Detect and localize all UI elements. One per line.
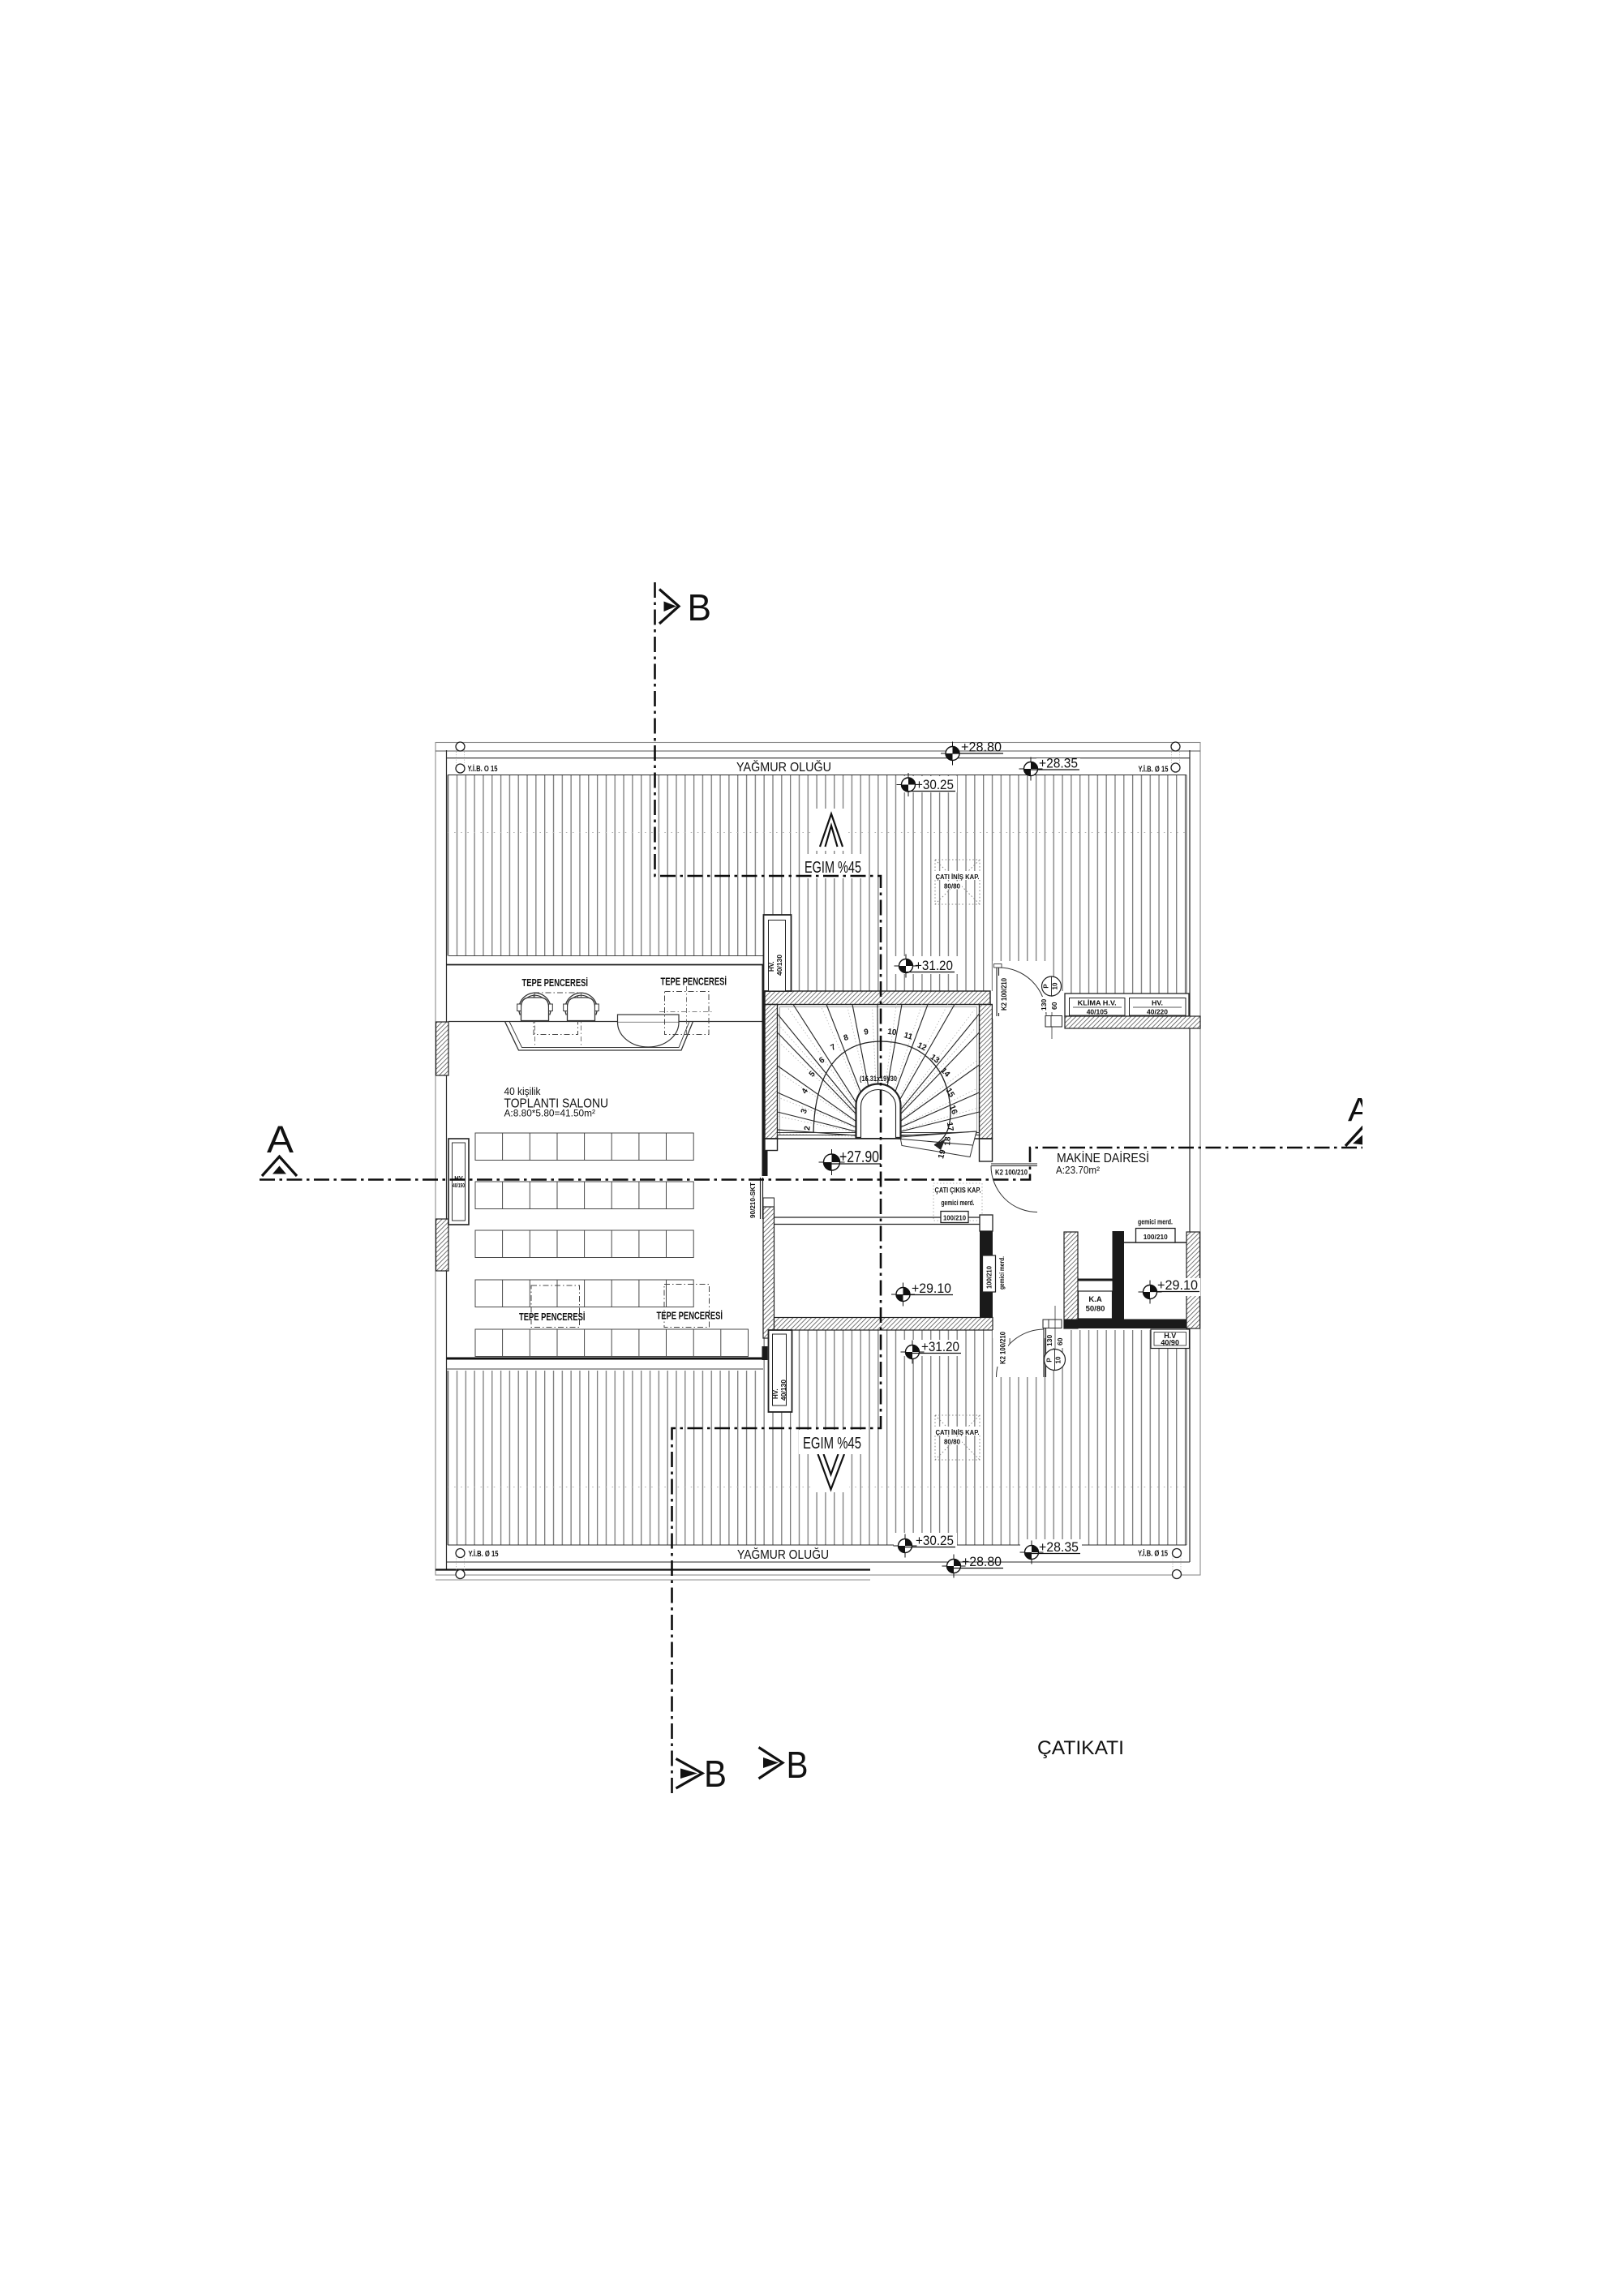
svg-text:K2 100/210: K2 100/210 (999, 1332, 1007, 1364)
svg-text:ÇATI ÇIKIS KAP.: ÇATI ÇIKIS KAP. (935, 1187, 981, 1195)
svg-text:80/80: 80/80 (944, 1439, 961, 1446)
svg-text:B: B (704, 1753, 727, 1795)
svg-text:EGIM %45: EGIM %45 (805, 859, 861, 877)
svg-text:+28.80: +28.80 (962, 1554, 1002, 1569)
svg-text:60: 60 (1050, 1002, 1058, 1010)
svg-text:40/220: 40/220 (1147, 1008, 1168, 1016)
svg-text:Y.İ.B. O 15: Y.İ.B. O 15 (468, 763, 498, 774)
svg-text:HV.: HV. (1152, 999, 1163, 1007)
svg-text:TEPE PENCERESİ: TEPE PENCERESİ (657, 1310, 723, 1322)
svg-text:10: 10 (887, 1028, 898, 1037)
svg-text:YAĞMUR OLUĞU: YAĞMUR OLUĞU (736, 759, 831, 775)
svg-text:40/105: 40/105 (1087, 1008, 1108, 1016)
svg-text:10: 10 (1055, 1356, 1062, 1363)
svg-text:100/210: 100/210 (986, 1265, 993, 1289)
svg-text:HV.: HV. (772, 1388, 779, 1399)
svg-text:P: P (1043, 984, 1050, 989)
svg-text:17: 17 (945, 1122, 955, 1132)
svg-text:P: P (1046, 1358, 1053, 1363)
svg-text:B: B (688, 586, 712, 629)
svg-text:18: 18 (943, 1136, 953, 1146)
svg-text:10: 10 (1052, 982, 1059, 989)
svg-text:ÇATI İNİŞ KAP.: ÇATI İNİŞ KAP. (936, 873, 980, 881)
svg-text:ÇATIKATI: ÇATIKATI (1037, 1737, 1124, 1759)
svg-text:50/80: 50/80 (1086, 1305, 1105, 1314)
svg-text:gemici merd.: gemici merd. (998, 1256, 1006, 1290)
svg-text:K2 100/210: K2 100/210 (1000, 978, 1008, 1011)
svg-text:130: 130 (1040, 999, 1048, 1011)
svg-text:+31.20: +31.20 (915, 958, 953, 973)
svg-text:TEPE PENCERESİ: TEPE PENCERESİ (519, 1311, 586, 1323)
svg-text:A:8.80*5.80=41.50m²: A:8.80*5.80=41.50m² (504, 1108, 596, 1119)
svg-text:+28.80: +28.80 (961, 740, 1002, 755)
svg-text:Y.İ.B. Ø 15: Y.İ.B. Ø 15 (1138, 1548, 1168, 1559)
svg-text:40 kişilik: 40 kişilik (504, 1085, 541, 1097)
svg-text:40/130: 40/130 (780, 1379, 787, 1401)
svg-text:gemici merd.: gemici merd. (942, 1199, 975, 1207)
svg-text:+31.20: +31.20 (921, 1339, 959, 1354)
svg-text:K.A: K.A (1088, 1295, 1102, 1304)
svg-text:KLİMA H.V.: KLİMA H.V. (1078, 999, 1117, 1007)
svg-text:100/210: 100/210 (943, 1215, 967, 1222)
svg-text:90/210-SKT: 90/210-SKT (749, 1182, 757, 1218)
svg-text:+28.35: +28.35 (1039, 1539, 1079, 1555)
svg-text:40/90: 40/90 (1161, 1339, 1179, 1347)
svg-text:K2 100/210: K2 100/210 (995, 1169, 1028, 1177)
svg-text:80/80: 80/80 (944, 883, 961, 891)
svg-text:TEPE PENCERESİ: TEPE PENCERESİ (661, 976, 727, 988)
svg-text:A:23.70m²: A:23.70m² (1056, 1164, 1101, 1176)
svg-text:+27.90: +27.90 (839, 1148, 879, 1166)
svg-text:A: A (267, 1118, 294, 1161)
svg-text:+29.10: +29.10 (912, 1281, 951, 1296)
svg-text:B: B (787, 1744, 809, 1786)
svg-text:YAĞMUR OLUĞU: YAĞMUR OLUĞU (737, 1547, 829, 1562)
svg-text:130: 130 (1045, 1335, 1053, 1346)
svg-text:+30.25: +30.25 (916, 777, 954, 792)
svg-text:+29.10: +29.10 (1157, 1277, 1198, 1293)
svg-text:gemici merd.: gemici merd. (1138, 1218, 1173, 1226)
svg-text:TEPE PENCERESİ: TEPE PENCERESİ (522, 976, 589, 989)
svg-text:+28.35: +28.35 (1039, 756, 1078, 771)
svg-text:HV.: HV. (768, 961, 775, 972)
svg-text:+30.25: +30.25 (916, 1533, 954, 1548)
svg-text:40/130: 40/130 (776, 954, 783, 976)
svg-text:Y.İ.B. Ø 15: Y.İ.B. Ø 15 (1139, 764, 1169, 775)
svg-text:EGIM %45: EGIM %45 (803, 1435, 861, 1453)
svg-text:Y.İ.B. Ø 15: Y.İ.B. Ø 15 (469, 1548, 499, 1559)
svg-text:ÇATI İNİŞ KAP.: ÇATI İNİŞ KAP. (936, 1429, 980, 1436)
svg-text:100/210: 100/210 (1144, 1233, 1168, 1241)
svg-text:60: 60 (1056, 1337, 1064, 1345)
svg-text:40/150: 40/150 (453, 1182, 465, 1189)
svg-text:(16.31x19)/30: (16.31x19)/30 (860, 1075, 897, 1083)
